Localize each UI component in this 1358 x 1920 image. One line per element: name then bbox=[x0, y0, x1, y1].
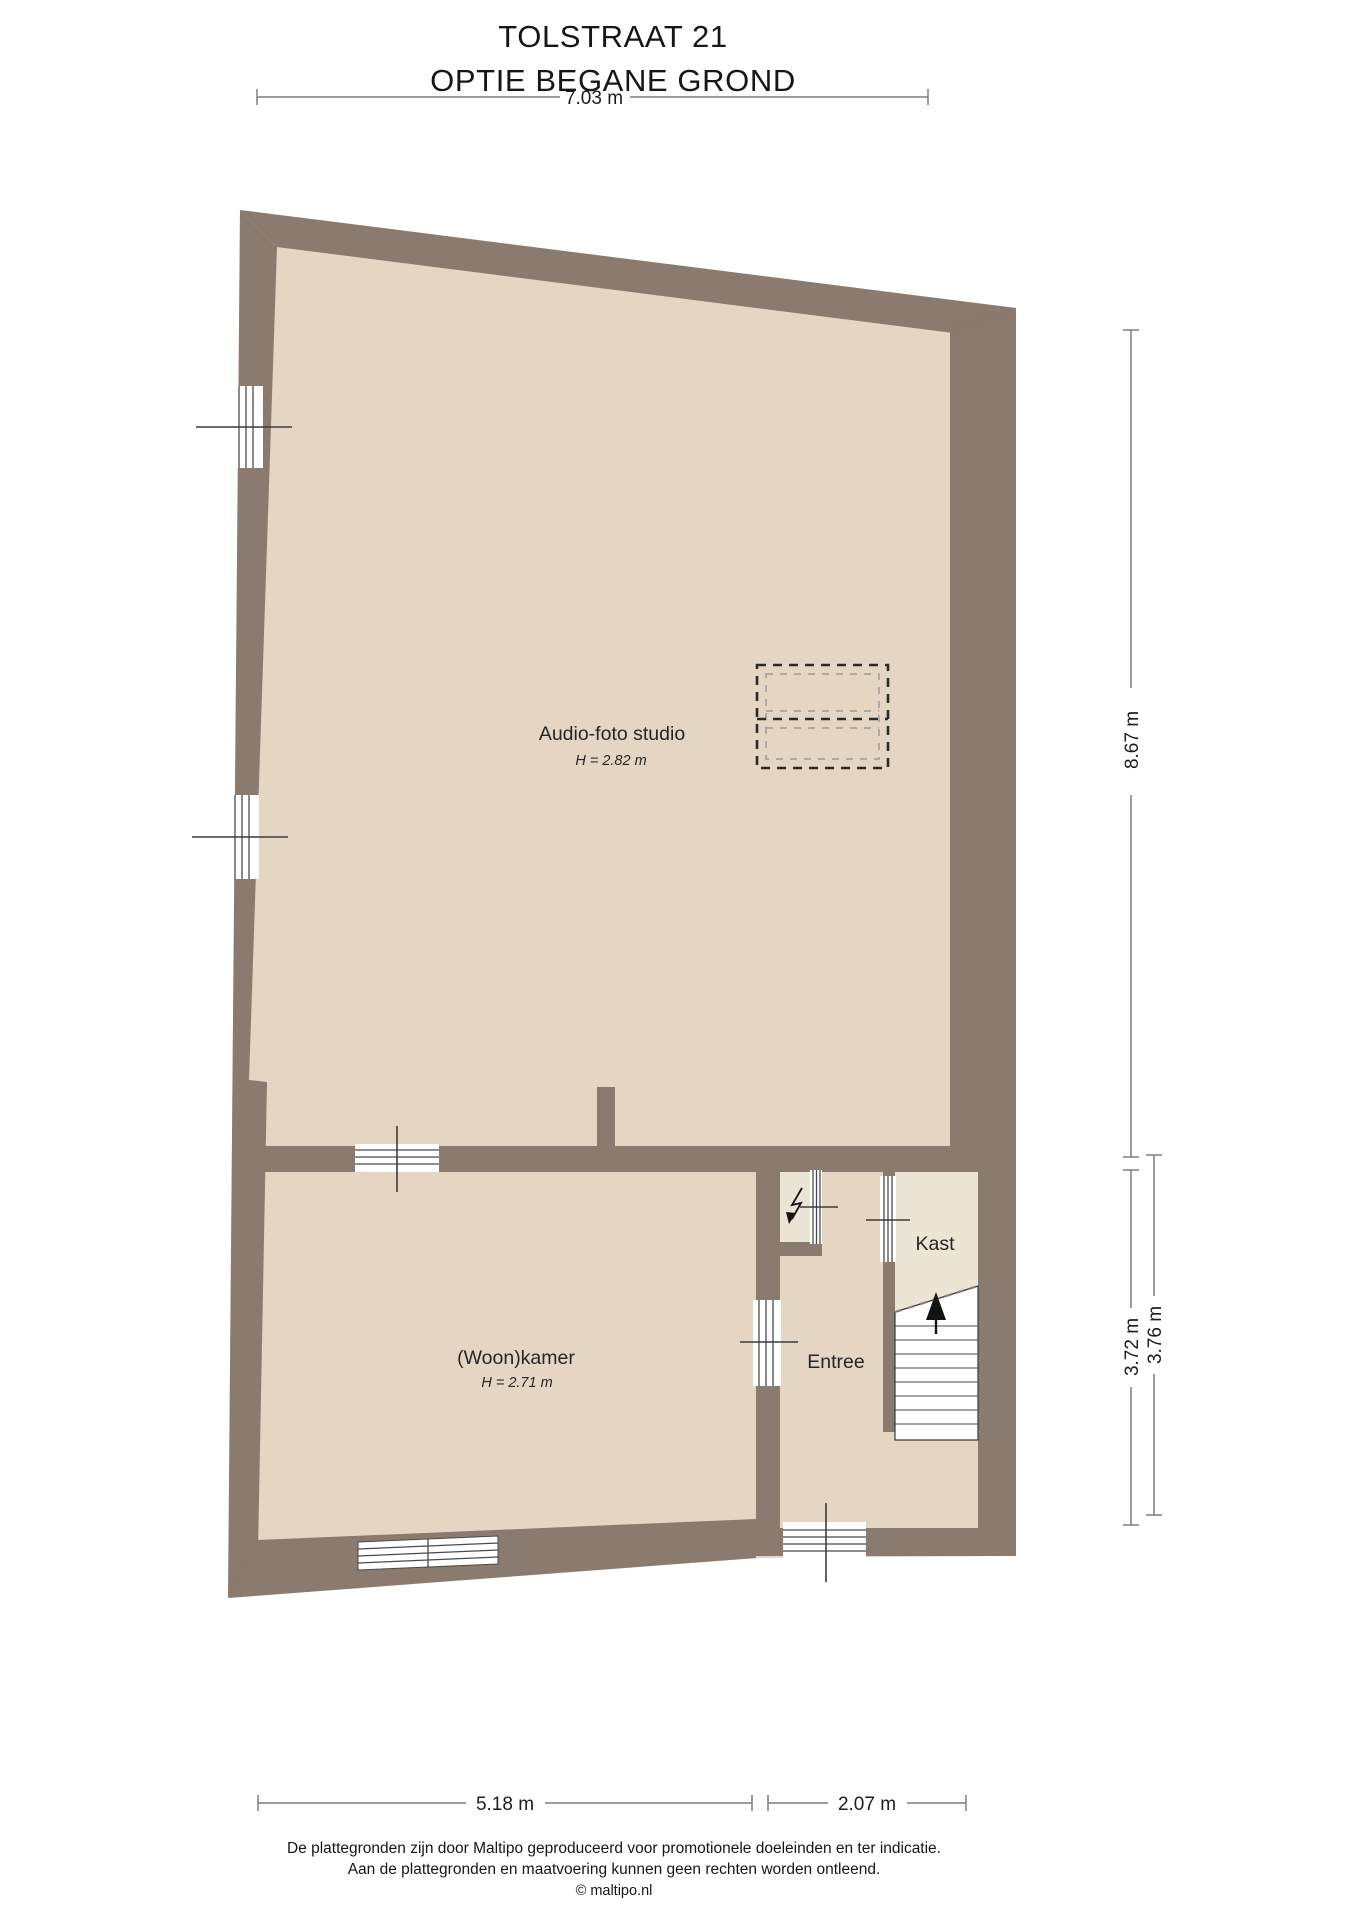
floorplan-drawing: TOLSTRAAT 21 OPTIE BEGANE GROND bbox=[0, 0, 1358, 1920]
room-label-woonkamer: (Woon)kamer bbox=[457, 1347, 575, 1369]
page-title: TOLSTRAAT 21 bbox=[498, 19, 727, 54]
floorplan-page: TOLSTRAAT 21 OPTIE BEGANE GROND bbox=[0, 0, 1358, 1920]
wall-meterkast-bottom bbox=[780, 1242, 822, 1256]
dimension-right-lower-inner: 3.72 m bbox=[1122, 1170, 1143, 1525]
room-label-studio: Audio-foto studio bbox=[539, 723, 686, 745]
dimension-right-lower-outer: 3.76 m bbox=[1145, 1155, 1166, 1515]
footer-disclaimer-1: De plattegronden zijn door Maltipo gepro… bbox=[287, 1840, 941, 1857]
staircase bbox=[895, 1286, 978, 1440]
dimension-top-label: 7.03 m bbox=[565, 88, 623, 109]
room-height-woonkamer: H = 2.71 m bbox=[481, 1375, 552, 1391]
dimension-top: 7.03 m bbox=[257, 88, 928, 109]
dimension-bottom-right-label: 2.07 m bbox=[838, 1794, 896, 1815]
room-label-entree: Entree bbox=[807, 1351, 864, 1373]
dimension-right-total-label: 8.67 m bbox=[1122, 711, 1143, 769]
wall-stub-studio bbox=[597, 1087, 615, 1147]
dimension-right-total: 8.67 m bbox=[1122, 330, 1143, 1157]
room-height-studio: H = 2.82 m bbox=[575, 753, 646, 769]
dimension-bottom-left: 5.18 m bbox=[258, 1794, 752, 1815]
footer-copyright: © maltipo.nl bbox=[576, 1883, 653, 1899]
dimension-right-lower-inner-label: 3.72 m bbox=[1122, 1318, 1143, 1376]
window-woonkamer-bottom bbox=[358, 1536, 498, 1570]
dimension-bottom-left-label: 5.18 m bbox=[476, 1794, 534, 1815]
dimension-bottom-right: 2.07 m bbox=[768, 1794, 966, 1815]
room-label-kast: Kast bbox=[915, 1233, 955, 1255]
dimension-right-lower-outer-label: 3.76 m bbox=[1145, 1306, 1166, 1364]
footer-disclaimer-2: Aan de plattegronden en maatvoering kunn… bbox=[348, 1861, 881, 1878]
